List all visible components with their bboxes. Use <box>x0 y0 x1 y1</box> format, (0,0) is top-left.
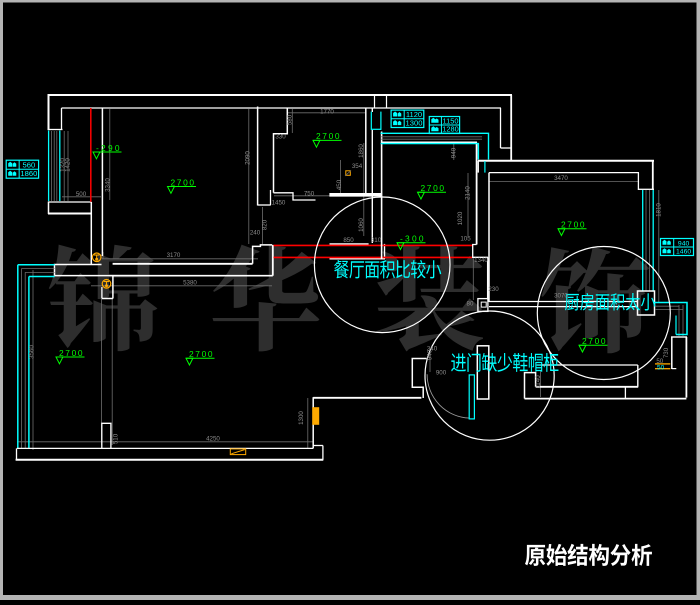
svg-text:510: 510 <box>113 433 120 444</box>
svg-text:1420: 1420 <box>65 158 72 172</box>
svg-text:2700: 2700 <box>171 177 195 187</box>
svg-text:940: 940 <box>678 240 690 247</box>
svg-text:2700: 2700 <box>59 348 83 358</box>
svg-text:820: 820 <box>262 219 269 230</box>
svg-text:1860: 1860 <box>358 144 365 158</box>
svg-text:450: 450 <box>336 179 343 190</box>
svg-text:1810: 1810 <box>655 203 662 217</box>
svg-text:900: 900 <box>436 370 447 377</box>
svg-text:580: 580 <box>287 114 294 125</box>
svg-text:354: 354 <box>352 163 363 170</box>
svg-text:2700: 2700 <box>316 131 340 141</box>
svg-text:750: 750 <box>304 191 315 198</box>
svg-text:230: 230 <box>488 286 499 293</box>
svg-text:730: 730 <box>663 347 670 358</box>
svg-text:240: 240 <box>250 230 261 237</box>
svg-text:1060: 1060 <box>358 218 365 232</box>
svg-text:80: 80 <box>467 301 474 308</box>
svg-text:500: 500 <box>76 191 87 198</box>
svg-text:5380: 5380 <box>183 280 197 287</box>
svg-text:1300: 1300 <box>406 118 423 127</box>
svg-text:3470: 3470 <box>554 175 568 182</box>
svg-text:1140: 1140 <box>535 375 542 389</box>
svg-text:3340: 3340 <box>105 178 112 192</box>
svg-text:1770: 1770 <box>320 109 334 116</box>
svg-text:330: 330 <box>275 133 286 140</box>
svg-text:3560: 3560 <box>29 345 36 359</box>
svg-text:3170: 3170 <box>167 252 181 259</box>
svg-text:1450: 1450 <box>272 199 286 206</box>
svg-text:2700: 2700 <box>421 183 445 193</box>
svg-text:340: 340 <box>427 346 438 353</box>
svg-text:2700: 2700 <box>561 220 585 230</box>
svg-text:2700: 2700 <box>189 349 213 359</box>
svg-text:2140: 2140 <box>464 186 471 200</box>
svg-text:940: 940 <box>450 147 457 158</box>
svg-text:1300: 1300 <box>298 411 305 425</box>
svg-text:50: 50 <box>657 364 665 371</box>
svg-text:105: 105 <box>460 236 471 243</box>
svg-text:4250: 4250 <box>206 436 220 443</box>
svg-text:1280: 1280 <box>442 124 458 133</box>
svg-text:2090: 2090 <box>245 151 252 165</box>
svg-text:50: 50 <box>656 358 663 365</box>
svg-text:1340: 1340 <box>474 257 488 264</box>
svg-text:850: 850 <box>343 237 354 244</box>
svg-text:1020: 1020 <box>457 211 464 225</box>
svg-text:3070: 3070 <box>554 293 568 300</box>
svg-text:1460: 1460 <box>676 248 691 255</box>
svg-text:1860: 1860 <box>20 169 37 178</box>
svg-text:310: 310 <box>371 237 382 244</box>
svg-text:2700: 2700 <box>582 336 606 346</box>
